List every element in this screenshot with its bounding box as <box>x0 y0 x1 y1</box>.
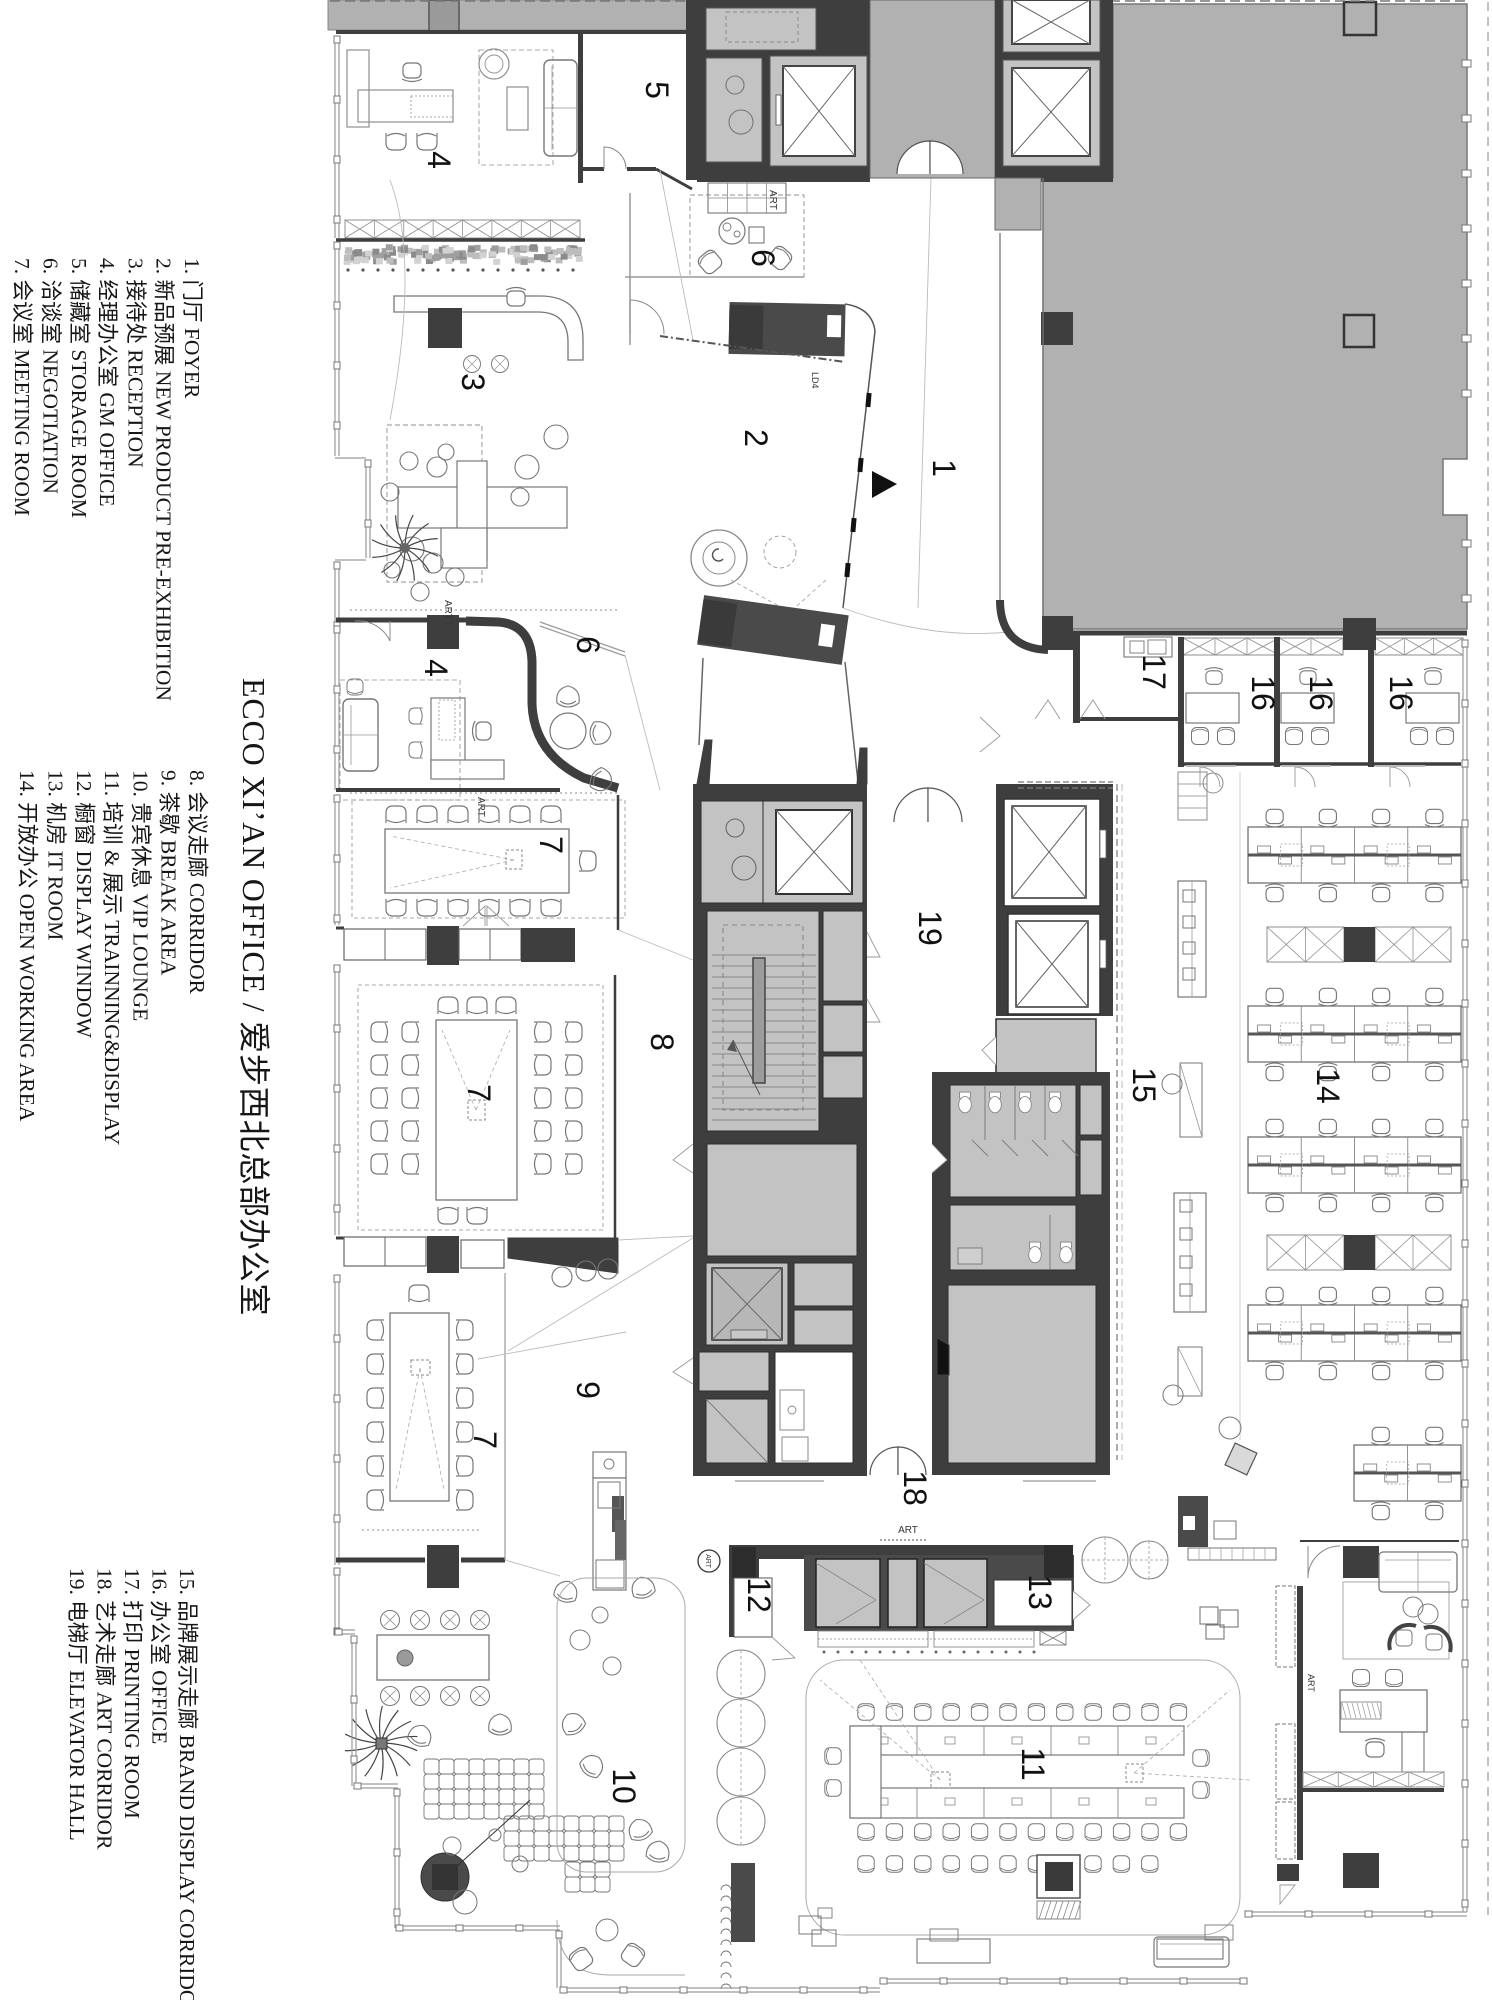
svg-text:LD4: LD4 <box>810 372 820 389</box>
svg-text:12. 橱窗 DISPLAY WINDOW: 12. 橱窗 DISPLAY WINDOW <box>72 770 96 1039</box>
svg-text:7: 7 <box>467 1431 503 1449</box>
svg-text:8. 会议走廊 CORRIDOR: 8. 会议走廊 CORRIDOR <box>185 770 209 995</box>
svg-text:2: 2 <box>738 429 774 447</box>
svg-text:19: 19 <box>912 910 948 946</box>
svg-text:7. 会议室 MEETING ROOM: 7. 会议室 MEETING ROOM <box>10 258 34 516</box>
svg-text:1: 1 <box>926 459 962 477</box>
svg-text:16: 16 <box>1245 675 1281 711</box>
svg-text:9: 9 <box>570 1381 606 1399</box>
svg-text:3: 3 <box>455 373 491 391</box>
svg-text:16: 16 <box>1383 675 1419 711</box>
svg-text:ART: ART <box>704 1554 711 1569</box>
svg-text:17: 17 <box>1136 654 1172 690</box>
svg-text:6: 6 <box>745 249 781 267</box>
svg-text:3. 接待处 RECEPTION: 3. 接待处 RECEPTION <box>123 258 147 468</box>
svg-text:2. 新品预展 NEW PRODUCT PRE-EXHIBI: 2. 新品预展 NEW PRODUCT PRE-EXHIBITION <box>152 258 176 701</box>
svg-text:10. 贵宾休息 VIP LOUNGE: 10. 贵宾休息 VIP LOUNGE <box>128 770 152 1021</box>
svg-text:9. 茶歇 BREAK AREA: 9. 茶歇 BREAK AREA <box>157 770 181 976</box>
svg-text:16. 办公室 OFFICE: 16. 办公室 OFFICE <box>148 1568 172 1744</box>
svg-text:11: 11 <box>1015 1747 1051 1780</box>
svg-text:14: 14 <box>1310 1068 1346 1104</box>
svg-text:10: 10 <box>606 1768 642 1804</box>
svg-text:12: 12 <box>741 1577 777 1613</box>
svg-text:4: 4 <box>418 659 454 677</box>
svg-text:7: 7 <box>533 836 569 854</box>
svg-text:ECCO XI’AN OFFICE / 爱步西北总部办公室: ECCO XI’AN OFFICE / 爱步西北总部办公室 <box>236 678 272 1316</box>
svg-text:16: 16 <box>1303 675 1339 711</box>
svg-text:13: 13 <box>1022 1574 1058 1610</box>
svg-text:18. 艺术走廊 ART CORRIDOR: 18. 艺术走廊 ART CORRIDOR <box>93 1568 117 1850</box>
svg-text:ART: ART <box>1306 1674 1316 1692</box>
svg-text:ART: ART <box>898 1525 918 1536</box>
svg-text:15. 品牌展示走廊 BRAND DISPLAY CORR: 15. 品牌展示走廊 BRAND DISPLAY CORRIDOR <box>175 1568 199 2000</box>
svg-text:5. 储藏室 STORAGE ROOM: 5. 储藏室 STORAGE ROOM <box>67 258 91 518</box>
svg-text:18: 18 <box>897 1470 933 1506</box>
svg-text:4. 经理办公室 GM OFFICE: 4. 经理办公室 GM OFFICE <box>95 258 119 506</box>
svg-text:11. 培训 & 展示 TRAINNING&DISPLAY: 11. 培训 & 展示 TRAINNING&DISPLAY <box>100 770 124 1145</box>
svg-text:14. 开放办公 OPEN WORKING AREA: 14. 开放办公 OPEN WORKING AREA <box>15 770 39 1122</box>
svg-text:15: 15 <box>1126 1067 1162 1103</box>
svg-text:ART: ART <box>767 190 778 210</box>
svg-text:6: 6 <box>570 636 606 654</box>
svg-text:6. 洽谈室 NEGOTIATION: 6. 洽谈室 NEGOTIATION <box>39 258 63 494</box>
svg-text:1. 门厅 FOYER: 1. 门厅 FOYER <box>180 258 204 399</box>
svg-text:5: 5 <box>639 81 675 99</box>
svg-text:19. 电梯厅 ELEVATOR HALL: 19. 电梯厅 ELEVATOR HALL <box>65 1568 89 1841</box>
svg-text:13. 机房 IT ROOM: 13. 机房 IT ROOM <box>44 770 68 940</box>
svg-text:ART: ART <box>442 600 453 620</box>
svg-text:17. 打印 PRINTING ROOM: 17. 打印 PRINTING ROOM <box>120 1568 144 1819</box>
svg-text:4: 4 <box>421 151 457 169</box>
svg-text:7: 7 <box>461 1084 497 1102</box>
svg-text:8: 8 <box>644 1033 680 1051</box>
